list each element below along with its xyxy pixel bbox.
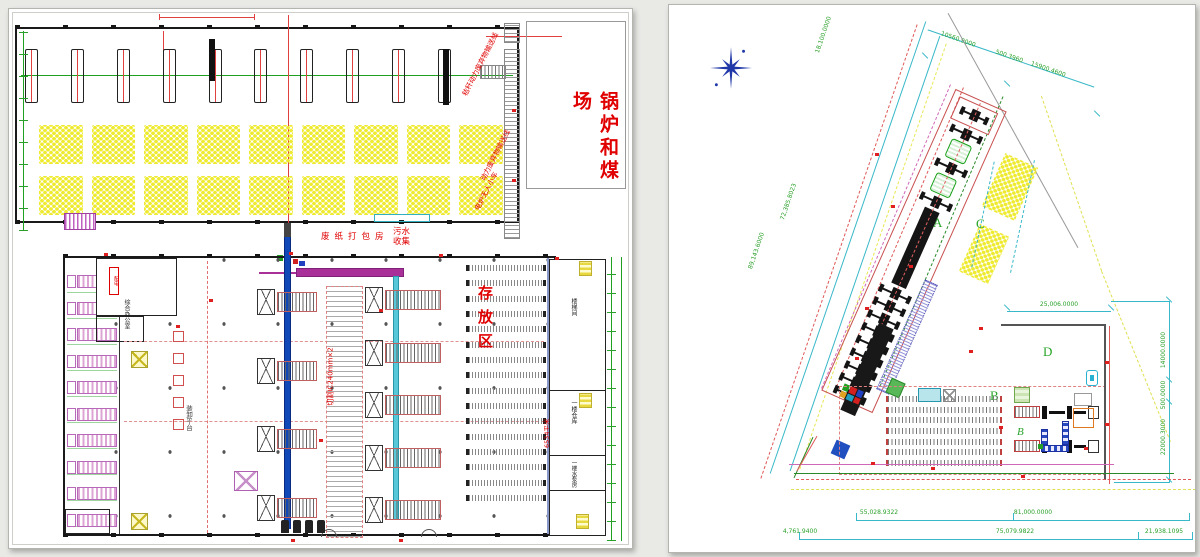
rack-strip bbox=[466, 403, 546, 409]
hopper bbox=[257, 495, 275, 521]
machine-unit bbox=[365, 287, 447, 313]
column-box bbox=[943, 389, 956, 402]
truck-bed bbox=[77, 355, 117, 368]
dim-tick bbox=[1004, 80, 1010, 86]
label-room-warehouse: 一楼仓库 bbox=[570, 400, 576, 424]
red-marker bbox=[979, 327, 983, 330]
machine-symbol bbox=[254, 49, 267, 103]
red-marker bbox=[291, 539, 295, 542]
red-marker bbox=[399, 539, 403, 542]
coal-pile-grid bbox=[39, 125, 503, 215]
red-marker bbox=[871, 462, 875, 465]
boundary-red-bottom bbox=[796, 479, 1191, 480]
machine-symbol bbox=[346, 49, 359, 103]
small-cabinet bbox=[1074, 393, 1092, 406]
small-machine bbox=[317, 520, 325, 533]
coal-pile bbox=[354, 176, 398, 215]
machine-symbol bbox=[300, 49, 313, 103]
coal-pile bbox=[197, 125, 241, 164]
dim-bottom-row1-right: 81,000.0000 bbox=[983, 510, 1083, 516]
dim-line-red bbox=[159, 17, 255, 18]
zone-label-d: D bbox=[1043, 345, 1052, 358]
label-dock: 装卸平台 bbox=[185, 405, 192, 431]
red-marker bbox=[1021, 475, 1025, 478]
truck-cab bbox=[67, 275, 76, 288]
belt bbox=[385, 395, 441, 415]
small-machines bbox=[281, 520, 325, 533]
truck bbox=[67, 487, 117, 500]
rack-strip bbox=[466, 357, 546, 363]
red-marker bbox=[909, 265, 913, 268]
dim-bottom-row2-left: 4,761.9400 bbox=[767, 529, 833, 535]
pipe bbox=[1062, 421, 1069, 445]
belt bbox=[385, 500, 441, 520]
motor bbox=[1088, 440, 1099, 453]
machine-column-2 bbox=[365, 287, 447, 523]
truck bbox=[67, 408, 117, 421]
red-marker bbox=[931, 467, 935, 470]
hopper bbox=[365, 340, 383, 366]
hydrant-icon bbox=[1086, 370, 1098, 386]
coal-pile bbox=[92, 125, 136, 164]
dim-site-top: 18,100.0000 bbox=[810, 4, 838, 69]
dim-yard-top: 25,006.0000 bbox=[1007, 302, 1111, 308]
belt bbox=[277, 292, 317, 312]
belt bbox=[277, 498, 317, 518]
truck-cab bbox=[67, 381, 76, 394]
rack-strip bbox=[466, 480, 546, 486]
dim-site-left-inner: 72,385.8023 bbox=[775, 168, 803, 236]
rack-strip bbox=[466, 388, 546, 394]
dim-line-bottom-2 bbox=[799, 539, 1193, 540]
coal-pile bbox=[144, 125, 188, 164]
boundary-red-vertical bbox=[1109, 326, 1110, 484]
truck bbox=[67, 461, 117, 474]
red-marker bbox=[1105, 361, 1109, 364]
boundary-green bbox=[794, 473, 1174, 474]
dim-tick bbox=[922, 52, 928, 58]
machine-unit bbox=[257, 289, 321, 315]
zone-label-c: C bbox=[976, 217, 985, 230]
rack-strip bbox=[466, 464, 546, 470]
truck-bed bbox=[77, 381, 117, 394]
conveyor-row bbox=[886, 460, 1002, 466]
machine-unit bbox=[365, 445, 447, 471]
pallet-square bbox=[173, 419, 184, 430]
rack-strip bbox=[466, 434, 546, 440]
coal-pile bbox=[39, 125, 83, 164]
red-marker bbox=[439, 254, 443, 257]
machine-unit bbox=[257, 358, 321, 384]
north-compass-icon bbox=[708, 45, 754, 91]
conveyor-row bbox=[886, 449, 1002, 455]
coal-pile bbox=[354, 125, 398, 164]
red-marker bbox=[1105, 423, 1109, 426]
red-marker bbox=[512, 179, 516, 182]
belt bbox=[385, 290, 441, 310]
side-rooms: 楼梯间 一楼仓库 一楼水泵房 bbox=[549, 259, 606, 536]
dim-ticks-green bbox=[19, 31, 28, 231]
dim-line-yard-top bbox=[1007, 311, 1111, 312]
coal-pile bbox=[407, 125, 451, 164]
room-divider bbox=[550, 455, 605, 456]
boundary-yellow-bottom bbox=[791, 489, 1196, 490]
conveyor-row bbox=[886, 439, 1002, 445]
coal-pile bbox=[302, 176, 346, 215]
sorting-conveyors bbox=[886, 396, 1002, 466]
machine-column-1 bbox=[257, 289, 321, 521]
truck bbox=[67, 381, 117, 394]
coal-pile bbox=[249, 176, 293, 215]
column-box bbox=[131, 351, 148, 368]
pallet-square bbox=[173, 397, 184, 408]
column-ticks-bottom bbox=[63, 533, 556, 537]
truck bbox=[67, 434, 117, 447]
rack-strip bbox=[466, 418, 546, 424]
column-box bbox=[131, 513, 148, 530]
stair-icon bbox=[579, 393, 592, 408]
red-marker bbox=[176, 325, 180, 328]
truck-cab bbox=[67, 461, 76, 474]
pallet-square bbox=[173, 375, 184, 386]
drawing-title: 锅炉和煤场 bbox=[567, 91, 621, 203]
truck-bed bbox=[77, 434, 117, 447]
room-divider bbox=[550, 490, 605, 491]
dim-ticks-green bbox=[607, 257, 616, 541]
column-ticks-top bbox=[15, 25, 519, 29]
label-office: 综合办公室 bbox=[123, 299, 129, 329]
rack-strip bbox=[466, 265, 546, 271]
cyan-outline-block bbox=[374, 214, 430, 222]
dim-tick bbox=[1094, 110, 1100, 116]
coal-pile bbox=[249, 125, 293, 164]
cad-canvas: 秸秆动力废弃物输送线 动力废弃物输送线 电炉无人小车 锅炉和煤场 废纸打包房 污… bbox=[0, 0, 1200, 557]
rack-strip bbox=[466, 495, 546, 501]
dim-bottom-row2-mid: 75,079.9822 bbox=[965, 529, 1065, 535]
belt bbox=[1014, 440, 1040, 452]
rack-strip bbox=[466, 372, 546, 378]
red-marker bbox=[512, 109, 516, 112]
rack-strip bbox=[466, 449, 546, 455]
label-room-stairwell: 楼梯间 bbox=[570, 298, 576, 316]
vegetation-patch bbox=[982, 153, 1038, 221]
yard-wall bbox=[1001, 324, 1105, 326]
machine-symbol bbox=[71, 49, 84, 103]
hopper bbox=[257, 289, 275, 315]
conveyor-row bbox=[886, 428, 1002, 434]
truck-bed bbox=[77, 487, 117, 500]
label-storage-zone: 存放区 bbox=[477, 285, 492, 357]
red-marker bbox=[379, 309, 383, 312]
truck-bed bbox=[77, 408, 117, 421]
truck-cab bbox=[67, 408, 76, 421]
truck-cab bbox=[67, 355, 76, 368]
dim-tick bbox=[254, 14, 255, 20]
right-drawing-sheet: 89,143.6000 72,385.8023 18,100.0000 1056… bbox=[668, 4, 1196, 553]
coal-pile bbox=[92, 176, 136, 215]
red-marker bbox=[999, 426, 1003, 429]
label-room-pump: 一楼水泵房 bbox=[570, 460, 576, 488]
coal-pile bbox=[39, 176, 83, 215]
machine-row bbox=[25, 45, 451, 103]
red-marker bbox=[289, 252, 293, 255]
truck-cab bbox=[67, 487, 76, 500]
dim-bottom-row2-right: 21,938.1095 bbox=[1114, 529, 1196, 535]
hopper bbox=[257, 426, 275, 452]
small-machine bbox=[305, 520, 313, 533]
yard-wall bbox=[1104, 324, 1106, 480]
pellet-line-1 bbox=[1014, 404, 1109, 420]
machine-unit bbox=[365, 497, 447, 523]
dim-site-left-outer: 89,143.6000 bbox=[741, 212, 773, 290]
crane-rail bbox=[207, 261, 208, 533]
red-marker bbox=[319, 439, 323, 442]
hopper bbox=[257, 358, 275, 384]
dim-line-green bbox=[621, 257, 622, 541]
belt bbox=[1014, 406, 1040, 418]
label-sewage: 污水收集 bbox=[393, 227, 415, 247]
orange-machine bbox=[1073, 408, 1094, 428]
stair-icon bbox=[579, 261, 592, 276]
truck bbox=[67, 355, 117, 368]
dim-ext bbox=[1111, 301, 1169, 302]
small-machine bbox=[281, 520, 289, 533]
pallet-column bbox=[173, 331, 184, 430]
scale-platform bbox=[234, 471, 258, 491]
red-marker bbox=[209, 299, 213, 302]
heavy-bar bbox=[443, 49, 449, 105]
zone-label-a: A bbox=[933, 216, 942, 229]
pallet-square bbox=[173, 353, 184, 364]
heavy-bar bbox=[209, 39, 215, 81]
flange bbox=[1067, 406, 1072, 419]
truck-cab bbox=[67, 302, 76, 315]
dim-ext bbox=[1114, 482, 1169, 483]
belt bbox=[277, 361, 317, 381]
belt bbox=[385, 343, 441, 363]
machine-unit bbox=[257, 426, 321, 452]
truck-cab bbox=[67, 328, 76, 341]
pipe-elbow bbox=[1038, 444, 1043, 449]
conveyor-row bbox=[886, 407, 1002, 413]
label-power-room: 配电 bbox=[109, 267, 119, 295]
cyan-pool bbox=[918, 388, 941, 402]
machine-unit bbox=[365, 392, 447, 418]
vegetation-patch bbox=[959, 224, 1009, 285]
machine-unit bbox=[257, 495, 321, 521]
red-marker bbox=[855, 357, 859, 360]
shaft bbox=[1049, 411, 1065, 414]
boundary-magenta bbox=[789, 464, 1114, 465]
truck-cab bbox=[67, 434, 76, 447]
truck-bed bbox=[77, 461, 117, 474]
stair-icon bbox=[576, 514, 589, 529]
pipe bbox=[1041, 429, 1048, 445]
dim-top-right-3: 15900.4600 bbox=[1014, 56, 1082, 84]
coal-pile bbox=[407, 176, 451, 215]
belt bbox=[277, 429, 317, 449]
dim-bottom-row1-left: 55,028.9322 bbox=[829, 510, 929, 516]
dim-right-3: 22000.3000 bbox=[1161, 407, 1167, 467]
machine-unit bbox=[365, 340, 447, 366]
boundary-yellow-right-1 bbox=[1041, 96, 1102, 271]
coal-pile bbox=[197, 176, 241, 215]
machine-symbol bbox=[117, 49, 130, 103]
red-marker bbox=[555, 257, 559, 260]
red-marker bbox=[865, 307, 869, 310]
machine-symbol bbox=[163, 49, 176, 103]
sub-room bbox=[96, 316, 144, 342]
machine-symbol bbox=[392, 49, 405, 103]
red-marker bbox=[1084, 447, 1088, 450]
label-packing-room: 废纸打包房 bbox=[321, 233, 389, 242]
room-divider bbox=[550, 390, 605, 391]
green-pad bbox=[1014, 387, 1030, 403]
dim-tick bbox=[159, 14, 160, 20]
label-cutter-spec: 切割IC240mm×2 bbox=[328, 297, 335, 457]
red-marker bbox=[104, 253, 108, 256]
red-marker bbox=[875, 153, 879, 156]
conveyor-corridor bbox=[504, 49, 520, 239]
purple-hatch-block bbox=[64, 213, 96, 230]
belt bbox=[385, 448, 441, 468]
conveyor-elbow bbox=[480, 65, 506, 79]
pallet-square bbox=[173, 331, 184, 342]
left-drawing-sheet: 秸秆动力废弃物输送线 动力废弃物输送线 电炉无人小车 锅炉和煤场 废纸打包房 污… bbox=[8, 8, 633, 549]
dim-tick bbox=[1189, 513, 1190, 521]
hopper bbox=[365, 497, 383, 523]
flange bbox=[1042, 406, 1047, 419]
corner-room bbox=[65, 509, 110, 534]
coal-pile bbox=[144, 176, 188, 215]
dim-line-right bbox=[1169, 301, 1170, 483]
dim-line-bottom-1 bbox=[856, 520, 1189, 521]
red-marker bbox=[969, 350, 973, 353]
coal-pile bbox=[302, 125, 346, 164]
conveyor-segment bbox=[504, 23, 520, 43]
small-machine bbox=[293, 520, 301, 533]
conveyor-row bbox=[886, 417, 1002, 423]
pipe bbox=[1041, 445, 1069, 452]
hopper bbox=[365, 392, 383, 418]
hopper bbox=[365, 445, 383, 471]
red-marker bbox=[891, 205, 895, 208]
